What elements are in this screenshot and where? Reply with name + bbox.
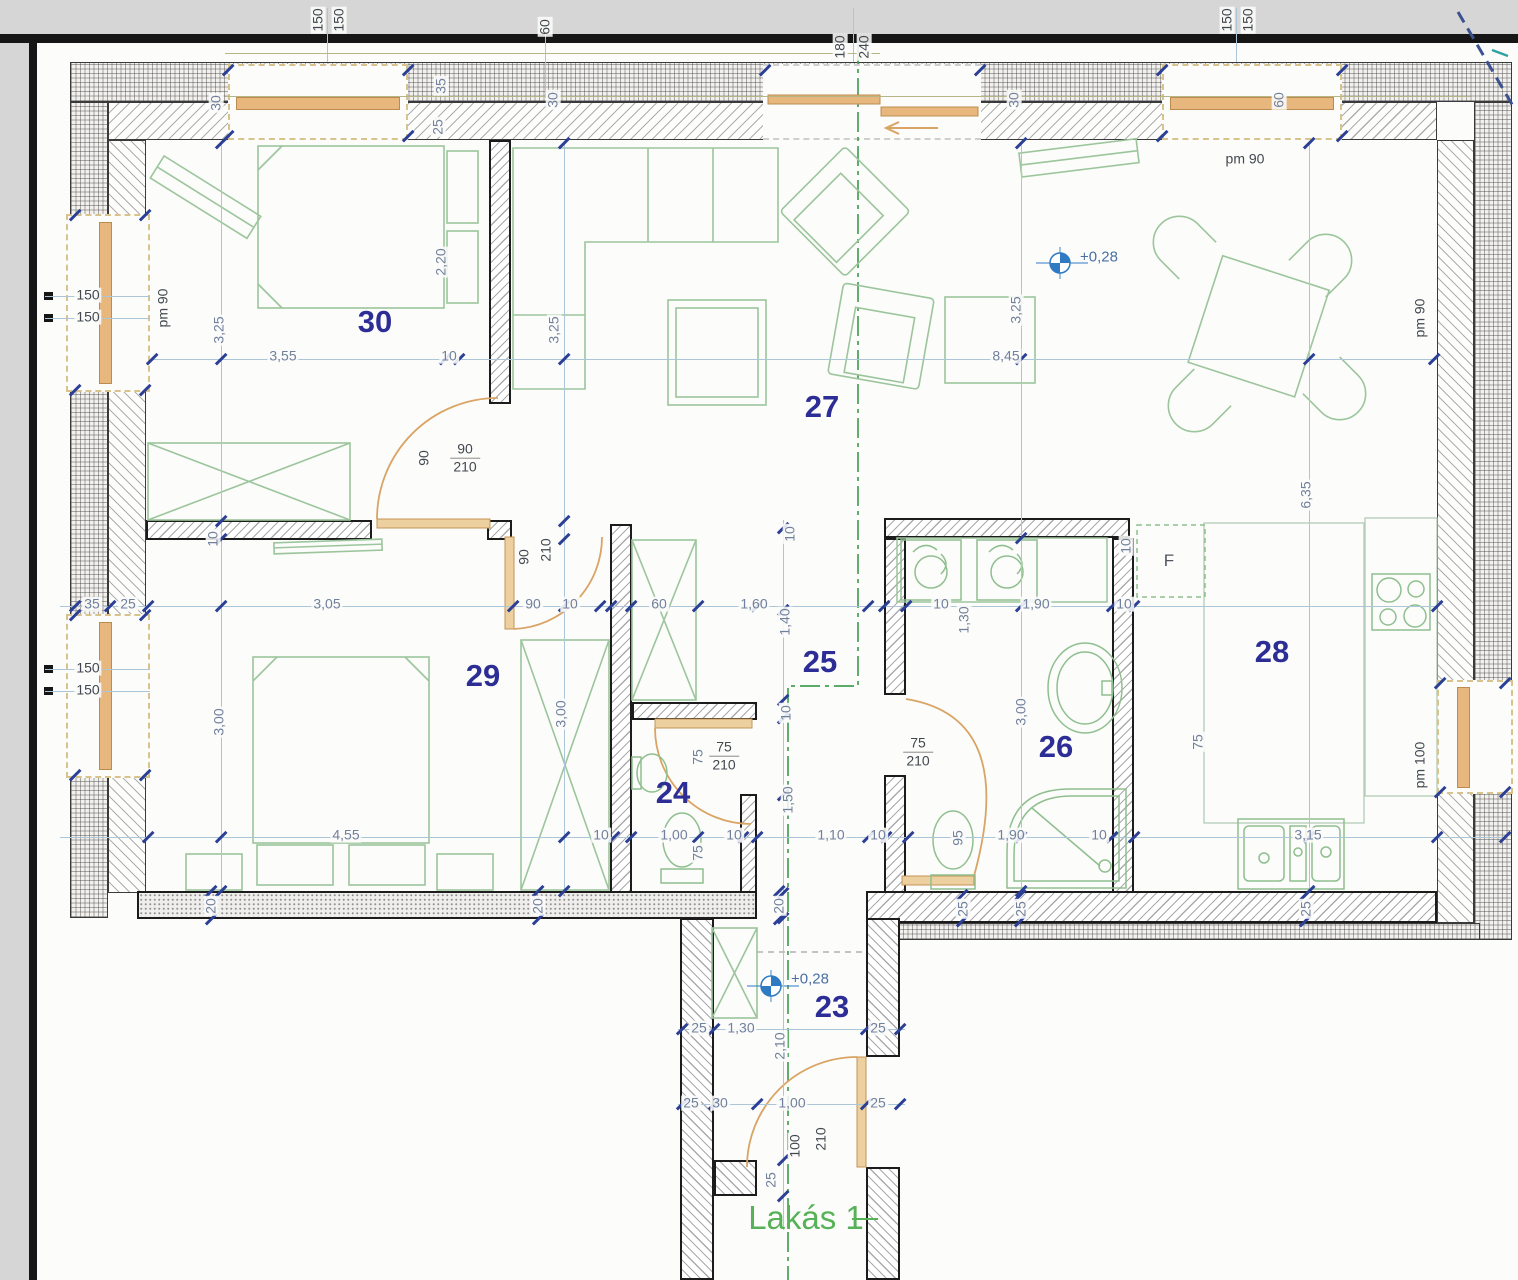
dimension-label: 75 bbox=[691, 843, 706, 863]
dimension-label: 3,00 bbox=[554, 698, 569, 729]
wall-entry-right-upper bbox=[866, 918, 900, 1057]
room-number: 25 bbox=[803, 644, 837, 680]
dimension-label: 150 bbox=[74, 683, 101, 698]
dimension-label: 10 bbox=[724, 828, 744, 843]
dimension-label: 10 bbox=[206, 529, 221, 549]
dimension-label: 180 bbox=[833, 33, 848, 60]
closet-entry23 bbox=[712, 928, 757, 1018]
room-number: 29 bbox=[466, 658, 500, 694]
furniture bbox=[148, 139, 1376, 1018]
dining-chair bbox=[1158, 369, 1232, 443]
door-height: 210 bbox=[903, 753, 933, 770]
dimension-label: pm 90 bbox=[1224, 152, 1267, 167]
door-width: 75 bbox=[709, 739, 739, 757]
dimension-label: 30 bbox=[209, 93, 224, 113]
cooktop-icon bbox=[1372, 574, 1430, 630]
dimension-label: 25 bbox=[118, 597, 138, 612]
dimension-label: 150 bbox=[74, 310, 101, 325]
page-margin-top bbox=[0, 0, 1518, 34]
dimension-label: 90 bbox=[517, 547, 532, 567]
dimension-line bbox=[1309, 143, 1310, 891]
dining-chair bbox=[1143, 206, 1217, 280]
dimension-label: 75 bbox=[691, 747, 706, 767]
dimension-line bbox=[150, 359, 1437, 360]
wall-bottom-bath-kitchen bbox=[866, 891, 1437, 923]
wall-exterior-right-insulation bbox=[1474, 102, 1512, 940]
window-room30-left-sash bbox=[99, 222, 112, 384]
dimension-label: 25 bbox=[1299, 899, 1314, 919]
dimension-label: 25 bbox=[868, 1021, 888, 1036]
dimension-label: 1,40 bbox=[778, 606, 793, 637]
dimension-label: 90 bbox=[523, 597, 543, 612]
dimension-label: 1,90 bbox=[995, 828, 1026, 843]
frame-line-top bbox=[0, 34, 1518, 43]
misc-marks bbox=[757, 12, 1513, 952]
dimension-label: 25 bbox=[764, 1170, 779, 1190]
dimension-label: 10 bbox=[439, 349, 459, 364]
dimension-label: 10 bbox=[1114, 597, 1134, 612]
elevation-marker-icon bbox=[747, 247, 1088, 1002]
door-size-label: 75210 bbox=[903, 735, 933, 770]
bed-room30 bbox=[258, 146, 478, 308]
frame-line-left bbox=[29, 43, 37, 1280]
coffee-table bbox=[668, 300, 766, 405]
closet-hall25 bbox=[632, 540, 696, 700]
dimension-label: 10 bbox=[868, 828, 888, 843]
dimension-label: 4,55 bbox=[330, 828, 361, 843]
door-size-label: 90210 bbox=[450, 441, 480, 476]
dimension-label: 30 bbox=[1007, 90, 1022, 110]
wall-closet-wc bbox=[632, 702, 757, 720]
window-kitchen-right-sash bbox=[1457, 687, 1470, 788]
dimension-label: 90 bbox=[417, 448, 432, 468]
door-room30 bbox=[377, 398, 498, 528]
armchair-a bbox=[780, 146, 910, 276]
room-number: 23 bbox=[815, 989, 849, 1025]
dimension-label: 10 bbox=[591, 828, 611, 843]
dimension-label: 30 bbox=[546, 90, 561, 110]
window-room30-top-sash bbox=[236, 97, 400, 110]
dimension-label: 3,05 bbox=[311, 597, 342, 612]
wardrobe-room29 bbox=[521, 640, 609, 890]
dimension-label: 20 bbox=[531, 896, 546, 916]
dimension-label: 3,15 bbox=[1292, 828, 1323, 843]
dimension-label: 10 bbox=[560, 597, 580, 612]
wall-bath-top bbox=[884, 518, 1130, 538]
dimension-label: 1,60 bbox=[738, 597, 769, 612]
dimension-label: 60 bbox=[649, 597, 669, 612]
dining-chair bbox=[1289, 224, 1363, 298]
dimension-label: 210 bbox=[814, 1125, 829, 1152]
dimension-label: 60 bbox=[538, 17, 553, 37]
dimension-label: 2,10 bbox=[773, 1030, 788, 1061]
dimension-label: 10 bbox=[779, 703, 794, 723]
elevation-label: +0,28 bbox=[1080, 249, 1118, 266]
washer-niche bbox=[897, 538, 1107, 602]
wall-exterior-right bbox=[1437, 140, 1474, 923]
wall-room30-room29 bbox=[146, 520, 372, 540]
dimension-label: 150 bbox=[1220, 6, 1235, 33]
dimension-label: 10 bbox=[783, 524, 798, 544]
dimension-label: 25 bbox=[1014, 899, 1029, 919]
elevation-label: +0,28 bbox=[791, 971, 829, 988]
dimension-label: 1,30 bbox=[725, 1021, 756, 1036]
dimension-label: pm 100 bbox=[1413, 740, 1428, 791]
door-bath26 bbox=[902, 699, 986, 885]
kitchen-counter bbox=[1204, 518, 1437, 823]
dimension-label: 3,25 bbox=[547, 314, 562, 345]
page-margin-left bbox=[0, 0, 29, 1280]
dimension-label: 1,90 bbox=[1020, 597, 1051, 612]
window-dining-top-sash bbox=[1170, 97, 1334, 110]
tv-console bbox=[1019, 139, 1139, 177]
apartment-label: Lakás 1 bbox=[748, 1199, 864, 1237]
dimension-label: 10 bbox=[1089, 828, 1109, 843]
door-entrance bbox=[747, 1057, 866, 1167]
dimension-line bbox=[225, 53, 880, 54]
dimension-label: 1,00 bbox=[658, 828, 689, 843]
kitchen-sink-icon bbox=[1238, 819, 1344, 889]
dimension-label: 25 bbox=[956, 899, 971, 919]
room-number: 27 bbox=[805, 389, 839, 425]
floor-plan-canvas: 15015060180240150150303525303060pm 90pm … bbox=[0, 0, 1518, 1280]
sideboard-room30 bbox=[150, 156, 260, 238]
door-size-label: 75210 bbox=[709, 739, 739, 774]
dimension-label: 95 bbox=[951, 828, 966, 848]
dimension-label: 150 bbox=[311, 6, 326, 33]
wall-bath-left-upper bbox=[884, 538, 906, 695]
dimension-label: 25 bbox=[868, 1096, 888, 1111]
dimension-label: 3,25 bbox=[212, 314, 227, 345]
dimension-line bbox=[1021, 143, 1022, 891]
door-width: 75 bbox=[903, 735, 933, 753]
bed-room29 bbox=[186, 657, 493, 890]
washing-machine-icon bbox=[977, 540, 1037, 600]
wall-room30-room29-stub bbox=[487, 520, 512, 540]
washing-machine-icon bbox=[901, 540, 961, 600]
dimension-label: 1,00 bbox=[776, 1096, 807, 1111]
room-number: 28 bbox=[1255, 634, 1289, 670]
wall-bottom-bedrooms bbox=[137, 891, 757, 919]
window-kitchen-right bbox=[1437, 680, 1513, 794]
dimension-label: 1,10 bbox=[815, 828, 846, 843]
wardrobe-room30 bbox=[148, 443, 350, 520]
dimension-label: 1,30 bbox=[957, 604, 972, 635]
dimension-label: 150 bbox=[74, 661, 101, 676]
dimension-label: 35 bbox=[82, 597, 102, 612]
dimension-label: 150 bbox=[332, 6, 347, 33]
dimension-label: 2,20 bbox=[434, 246, 449, 277]
door-height: 210 bbox=[709, 757, 739, 774]
dimension-label: pm 90 bbox=[156, 287, 171, 330]
dimension-label: 30 bbox=[710, 1096, 730, 1111]
dimension-label: 25 bbox=[681, 1096, 701, 1111]
dimension-label: 25 bbox=[689, 1021, 709, 1036]
dimension-label: 20 bbox=[772, 896, 787, 916]
dimension-line bbox=[1236, 8, 1237, 62]
dimension-label: 20 bbox=[204, 896, 219, 916]
dimension-label: 35 bbox=[434, 76, 449, 96]
dimension-label: 3,00 bbox=[212, 706, 227, 737]
dimension-label: 60 bbox=[1272, 90, 1287, 110]
room-number: 30 bbox=[358, 304, 392, 340]
toilet-bath26-icon bbox=[931, 811, 975, 889]
dimension-label: 8,45 bbox=[990, 349, 1021, 364]
dimension-label: F bbox=[1162, 552, 1176, 570]
wall-bottom-insulation bbox=[893, 923, 1480, 940]
dimension-label: 25 bbox=[431, 117, 446, 137]
dimension-label: 150 bbox=[1241, 6, 1256, 33]
dimension-label: 210 bbox=[539, 536, 554, 563]
room-number: 26 bbox=[1039, 729, 1073, 765]
door-width: 90 bbox=[450, 441, 480, 459]
room-number: 24 bbox=[656, 775, 690, 811]
dimension-label: pm 90 bbox=[1413, 297, 1428, 340]
wall-entry-right-lower bbox=[866, 1167, 900, 1280]
dimension-label: 100 bbox=[788, 1132, 803, 1159]
radiator-room29 bbox=[274, 539, 382, 554]
wall-room30-room27 bbox=[489, 140, 511, 404]
armchair-b bbox=[828, 283, 935, 390]
sink-bath26-icon bbox=[1048, 643, 1122, 733]
dimension-label: 3,00 bbox=[1014, 696, 1029, 727]
dimension-label: 150 bbox=[74, 288, 101, 303]
dimension-label: 10 bbox=[931, 597, 951, 612]
dimension-label: 10 bbox=[1119, 536, 1134, 556]
dining-chair bbox=[1303, 357, 1377, 431]
door-height: 210 bbox=[450, 459, 480, 476]
dimension-label: 75 bbox=[1191, 732, 1206, 752]
dimension-label: 240 bbox=[857, 33, 872, 60]
terrace-sliding-door bbox=[763, 64, 981, 140]
dimension-label: 6,35 bbox=[1299, 479, 1314, 510]
sofa-room27 bbox=[513, 148, 778, 389]
wall-entry-left-step bbox=[714, 1160, 757, 1196]
dimension-label: 3,25 bbox=[1009, 294, 1024, 325]
wall-wc-hall-stub bbox=[740, 794, 757, 893]
dimension-label: 3,55 bbox=[267, 349, 298, 364]
dimension-label: 1,50 bbox=[781, 784, 796, 815]
